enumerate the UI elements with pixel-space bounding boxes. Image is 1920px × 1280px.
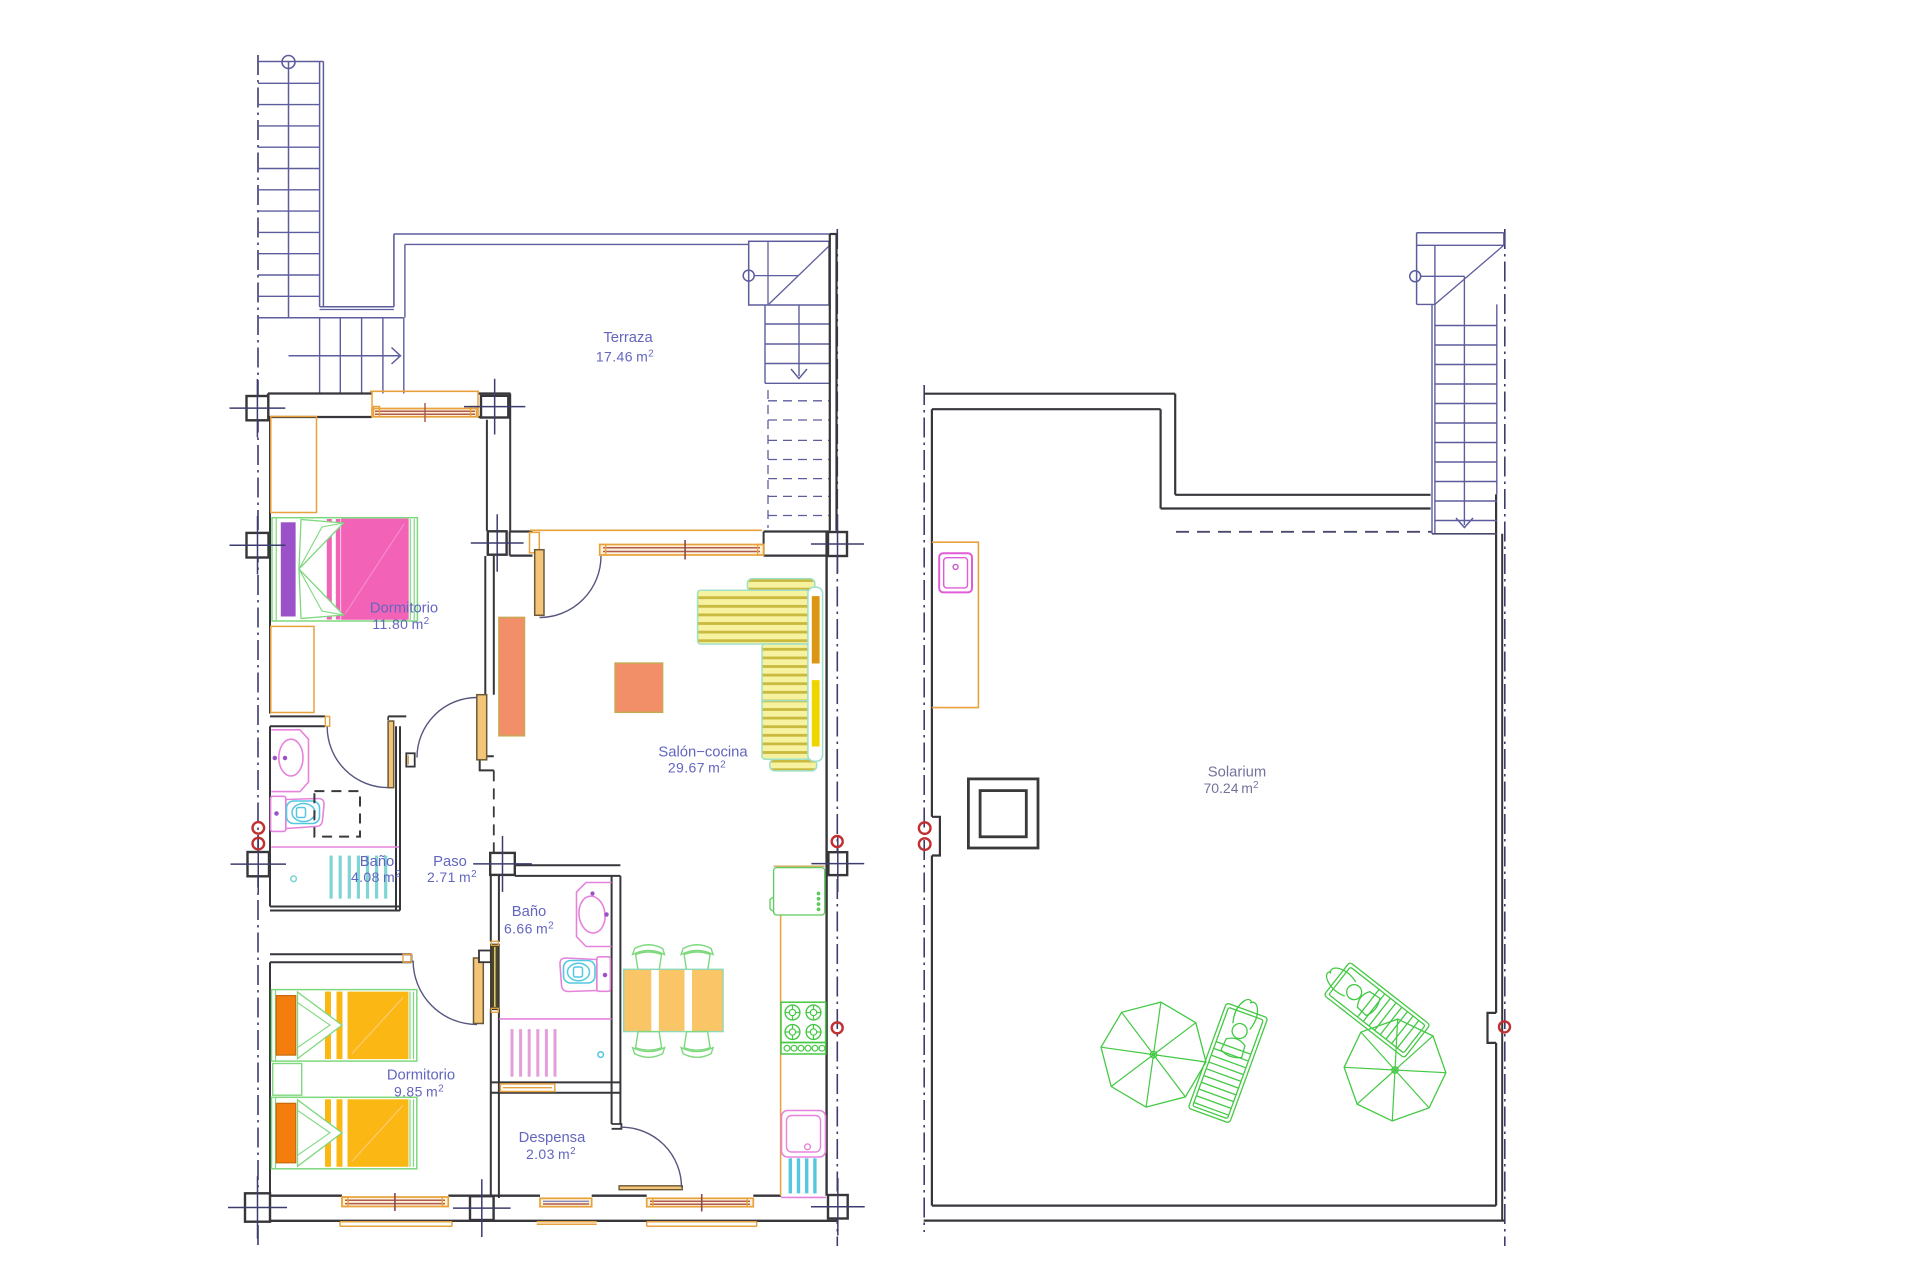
svg-text:2.71 m2: 2.71 m2 [427, 869, 477, 885]
svg-text:Baño: Baño [360, 854, 395, 870]
svg-text:29.67 m2: 29.67 m2 [668, 759, 726, 775]
svg-text:Dormitorio: Dormitorio [370, 601, 438, 617]
svg-text:4.08 m2: 4.08 m2 [351, 869, 401, 885]
svg-text:2.03 m2: 2.03 m2 [526, 1146, 576, 1162]
svg-text:9.85 m2: 9.85 m2 [394, 1084, 444, 1100]
svg-text:Solarium: Solarium [1208, 765, 1266, 781]
svg-text:Despensa: Despensa [519, 1130, 586, 1146]
svg-text:11.80 m2: 11.80 m2 [372, 616, 429, 632]
svg-text:Baño: Baño [512, 904, 547, 920]
svg-text:Terraza: Terraza [603, 330, 653, 346]
svg-text:Salón−cocina: Salón−cocina [658, 745, 748, 761]
svg-text:Paso: Paso [433, 854, 467, 870]
svg-text:17.46 m2: 17.46 m2 [596, 349, 654, 365]
svg-text:Dormitorio: Dormitorio [387, 1068, 455, 1084]
svg-text:6.66 m2: 6.66 m2 [504, 921, 554, 937]
svg-text:70.24 m2: 70.24 m2 [1203, 780, 1259, 796]
